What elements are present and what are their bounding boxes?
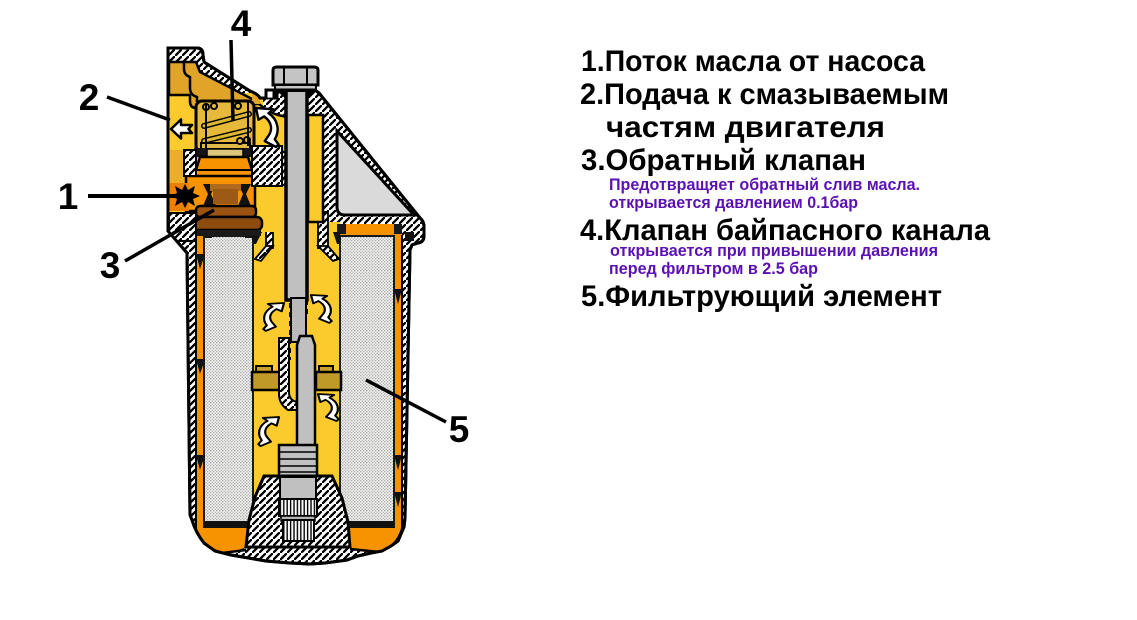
svg-text:частям двигателя: частям двигателя <box>606 111 885 144</box>
svg-text:1: 1 <box>58 176 79 217</box>
svg-text:Предотвращяет обратный слив ма: Предотвращяет обратный слив масла. <box>609 176 920 194</box>
svg-text:1.Поток масла от насоса: 1.Поток масла от насоса <box>581 45 925 78</box>
svg-text:4: 4 <box>231 3 252 44</box>
svg-text:открывается при привышении дав: открывается при привышении давления <box>610 242 938 260</box>
svg-text:3: 3 <box>100 245 121 286</box>
svg-text:5: 5 <box>449 409 470 450</box>
svg-text:5.Фильтрующий элемент: 5.Фильтрующий элемент <box>581 280 942 313</box>
svg-text:перед фильтром в 2.5 бар: перед фильтром в 2.5 бар <box>609 260 818 278</box>
svg-text:открывается давлением 0.1бар: открывается давлением 0.1бар <box>609 194 858 212</box>
svg-text:2: 2 <box>79 77 100 118</box>
svg-text:3.Обратный клапан: 3.Обратный клапан <box>581 144 866 177</box>
svg-text:2.Подача к смазываемым: 2.Подача к смазываемым <box>580 78 949 111</box>
